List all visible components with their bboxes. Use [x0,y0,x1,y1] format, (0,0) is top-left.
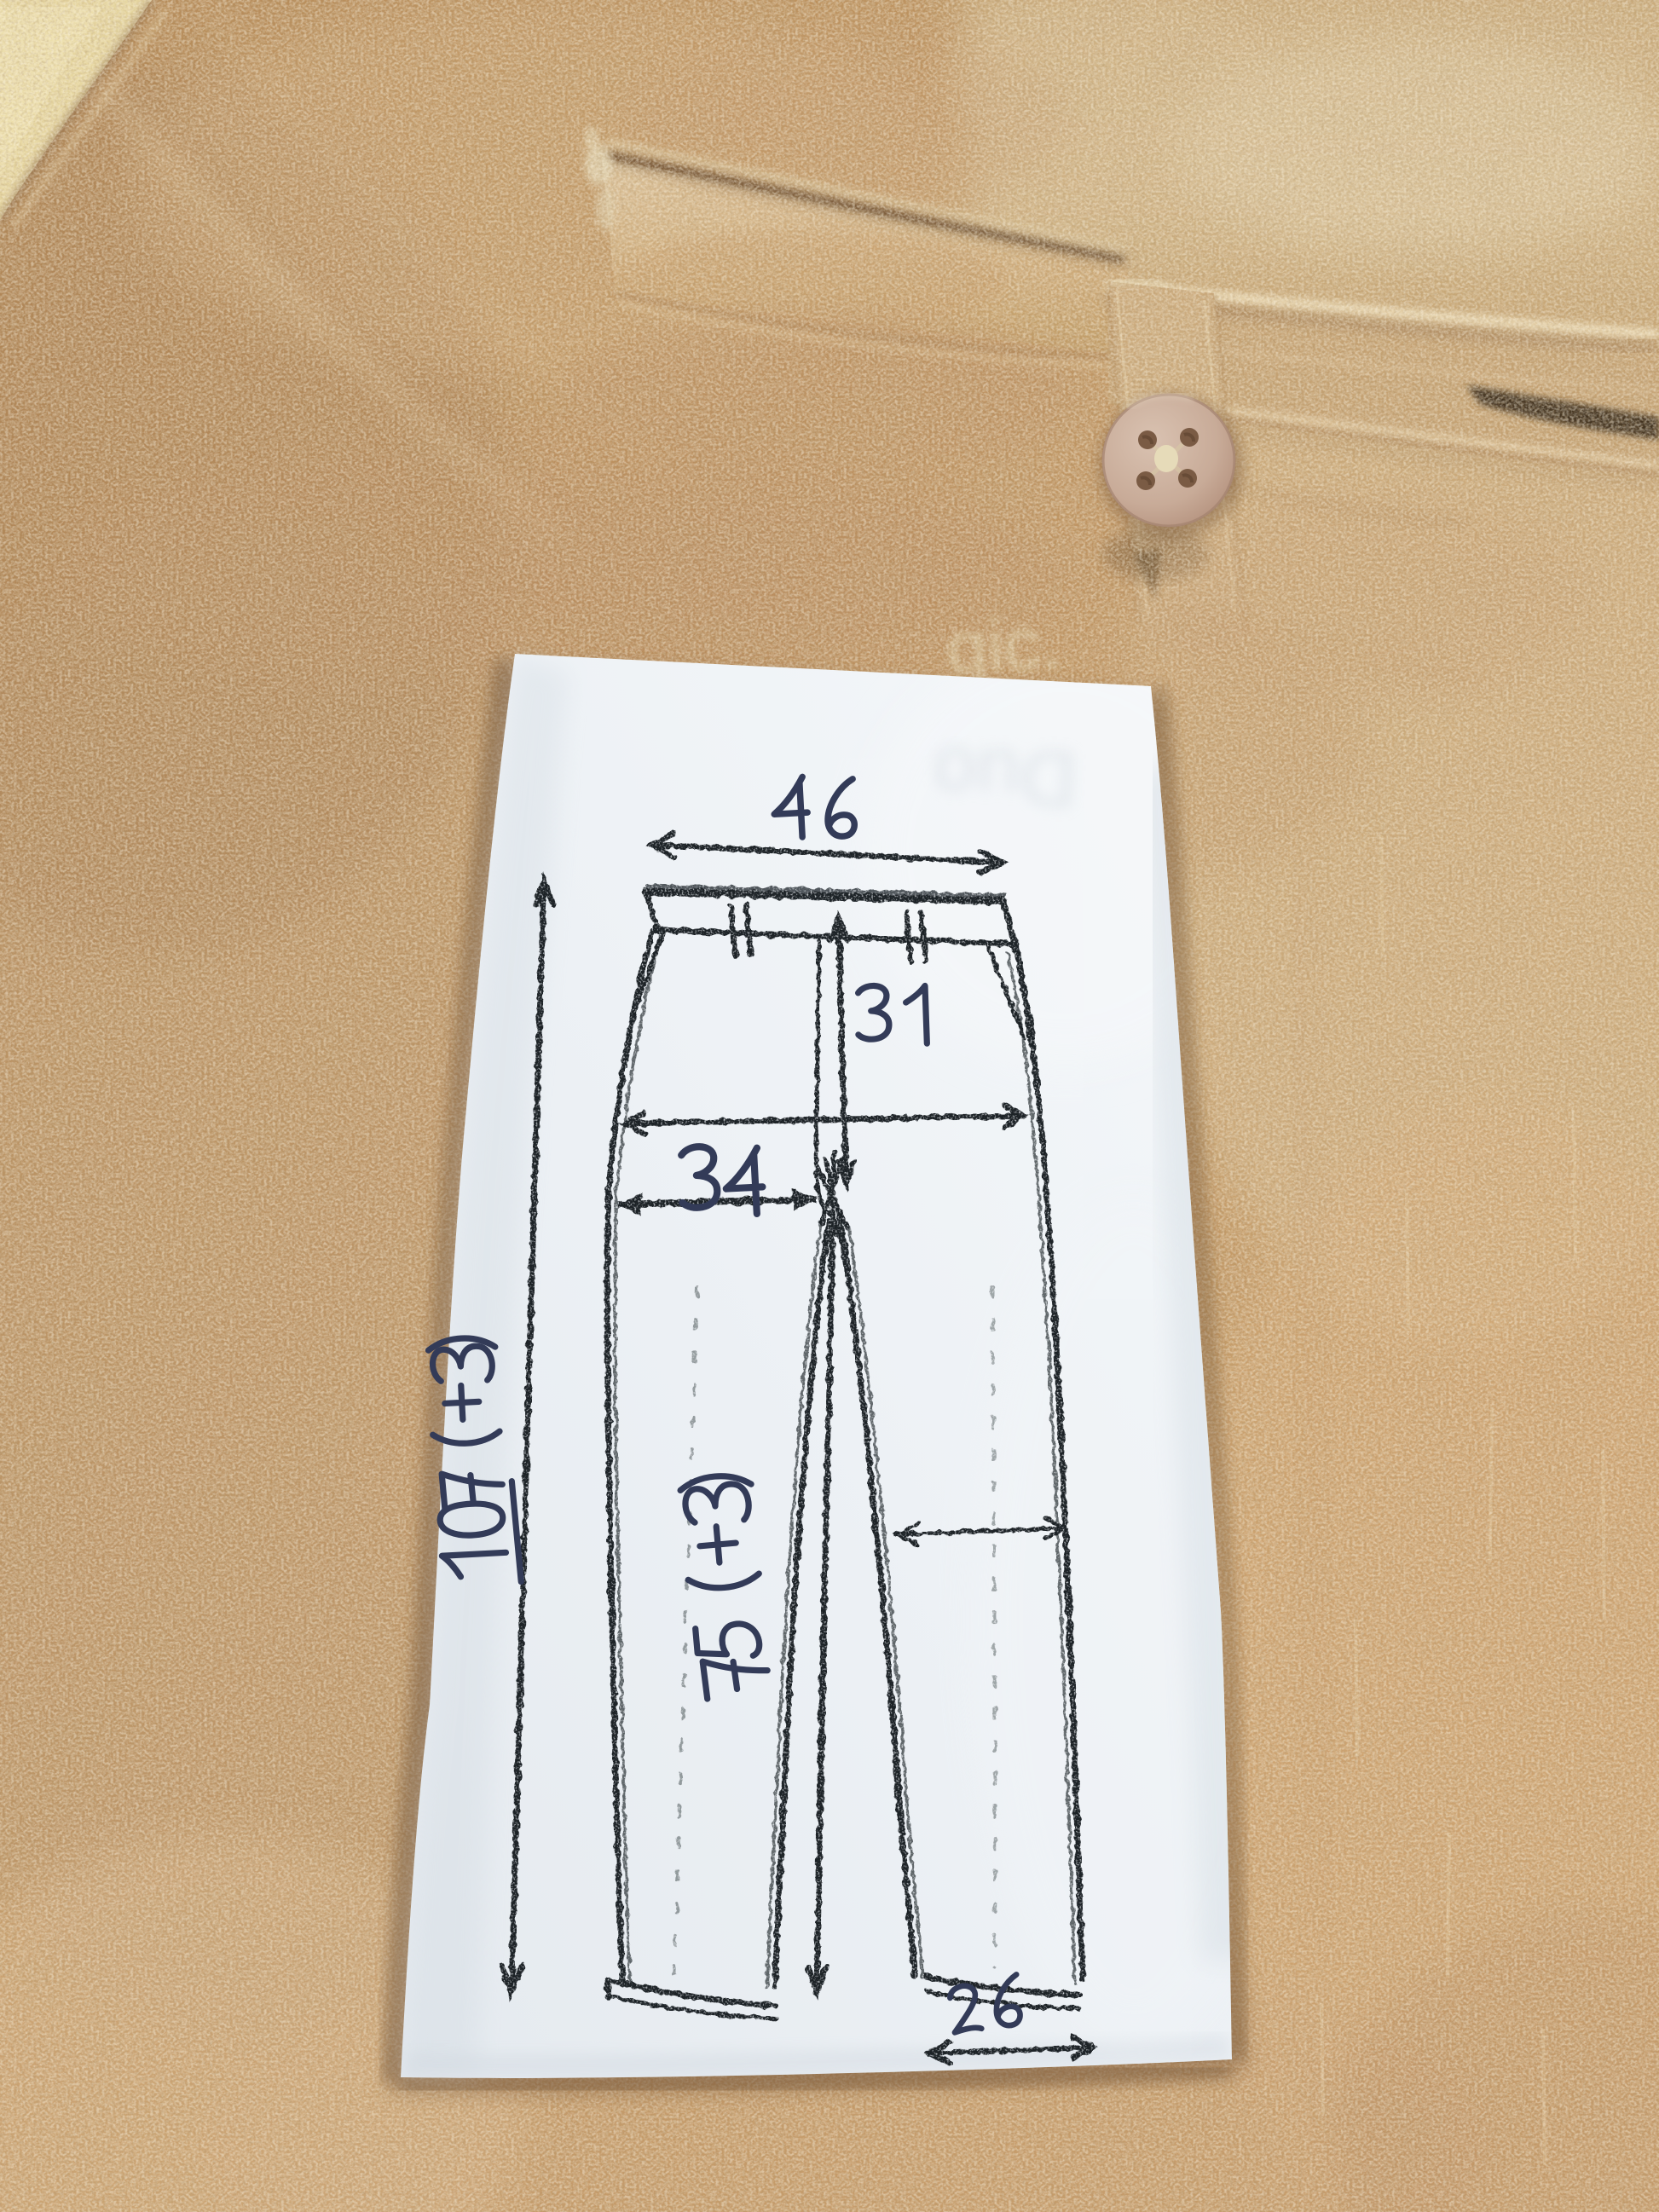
svg-text:Duo: Duo [931,731,1078,823]
